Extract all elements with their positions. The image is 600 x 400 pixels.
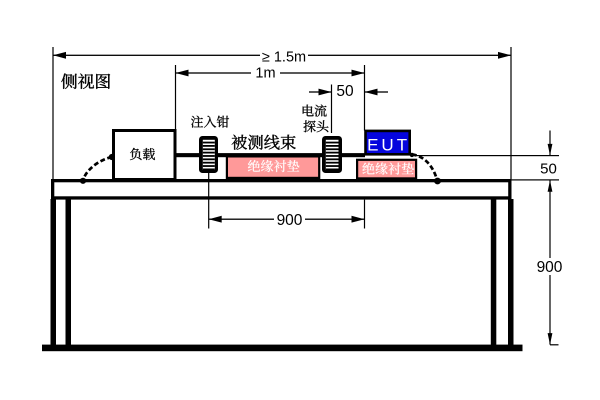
- svg-text:1m: 1m: [255, 66, 275, 82]
- svg-text:50: 50: [540, 160, 557, 177]
- svg-text:≥ 1.5m: ≥ 1.5m: [262, 49, 306, 65]
- svg-text:EUT: EUT: [367, 136, 410, 155]
- svg-text:50: 50: [336, 83, 354, 100]
- svg-text:900: 900: [277, 212, 303, 229]
- svg-text:900: 900: [537, 259, 563, 276]
